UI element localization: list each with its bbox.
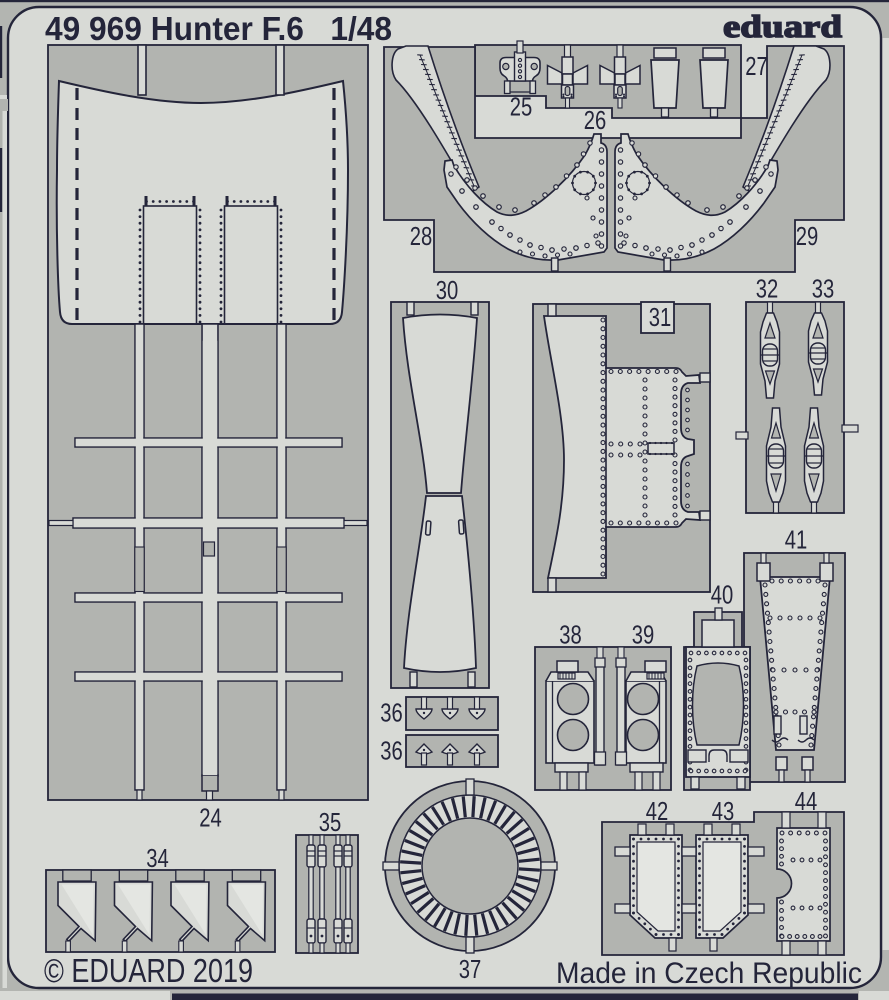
- svg-text:24: 24: [199, 803, 222, 833]
- svg-text:43: 43: [712, 796, 735, 826]
- svg-text:27: 27: [745, 51, 768, 81]
- svg-text:39: 39: [632, 620, 655, 650]
- svg-text:34: 34: [146, 843, 169, 873]
- svg-text:36: 36: [380, 698, 403, 728]
- svg-text:30: 30: [436, 275, 459, 305]
- svg-text:49 969 Hunter F.6 1/48: 49 969 Hunter F.6 1/48: [45, 10, 392, 47]
- svg-text:40: 40: [711, 580, 734, 610]
- svg-text:36: 36: [380, 736, 403, 766]
- svg-text:38: 38: [559, 620, 582, 650]
- svg-text:31: 31: [649, 302, 672, 332]
- svg-text:26: 26: [584, 105, 607, 135]
- svg-text:25: 25: [510, 92, 533, 122]
- svg-text:44: 44: [795, 786, 818, 816]
- svg-text:41: 41: [785, 525, 808, 555]
- svg-text:29: 29: [796, 221, 819, 251]
- svg-text:33: 33: [812, 274, 835, 304]
- svg-text:eduard: eduard: [723, 8, 842, 44]
- svg-text:37: 37: [459, 954, 482, 984]
- svg-text:42: 42: [646, 796, 669, 826]
- svg-text:28: 28: [410, 221, 433, 251]
- svg-text:32: 32: [756, 274, 779, 304]
- svg-text:35: 35: [319, 807, 342, 837]
- svg-text:Made in Czech Republic: Made in Czech Republic: [556, 957, 862, 990]
- svg-text:© EDUARD 2019: © EDUARD 2019: [44, 952, 253, 989]
